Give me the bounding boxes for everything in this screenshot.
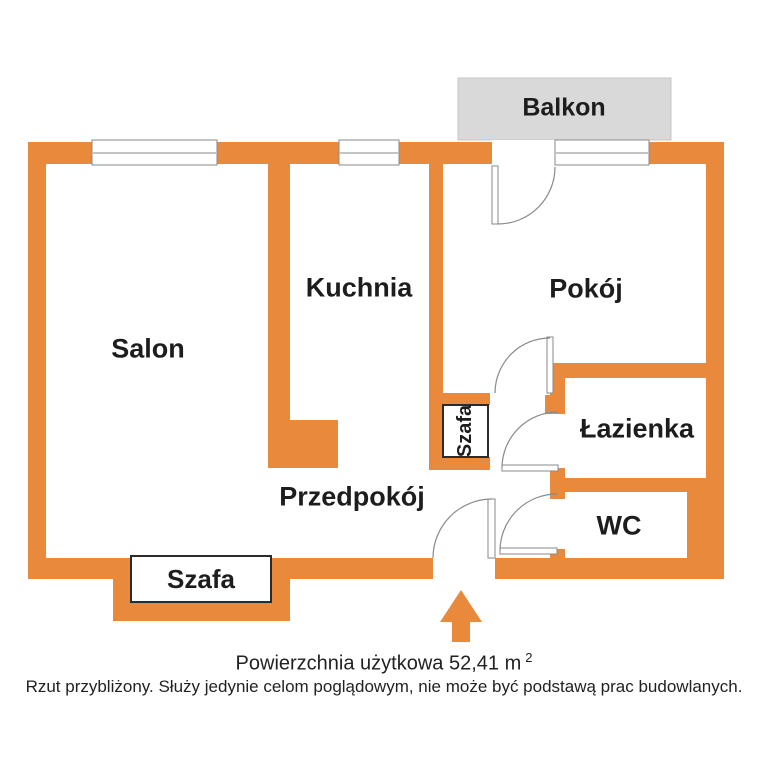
wall-salon-kuchnia-foot [268, 420, 338, 468]
door-panel-pokoj [547, 337, 553, 393]
wall-lazienka-wc-divider [565, 478, 706, 492]
door-arc-wc [500, 494, 557, 551]
wall-door-hinge-block [545, 395, 565, 414]
floor-plan: Balkon Salon Kuchnia Pokój Przedpokój Ła… [0, 0, 768, 768]
room-label-lazienka: Łazienka [580, 416, 694, 443]
room-label-przedpokoj: Przedpokój [279, 484, 425, 511]
closet-hall-bottom-bar [429, 457, 490, 470]
door-arc-pokoj [495, 338, 550, 393]
room-label-kuchnia: Kuchnia [306, 275, 413, 302]
usable-area-superscript: 2 [525, 650, 532, 665]
wall-kuchnia-hall [429, 164, 443, 470]
usable-area-text: Powierzchnia użytkowa 52,41 m2 [0, 650, 768, 676]
closet-label-salon: Szafa [167, 566, 235, 592]
room-label-salon: Salon [111, 336, 185, 363]
door-panel-lazienka [502, 465, 558, 471]
door-panel-entrance [488, 499, 495, 558]
room-label-pokoj: Pokój [549, 276, 623, 303]
room-label-wc: WC [597, 513, 642, 540]
wall-right [706, 142, 724, 579]
closet-hall-top-bar [443, 393, 490, 405]
door-panel-balcony [492, 166, 498, 224]
closet-label-hall: Szafa [455, 405, 475, 457]
wall-wc-right-filler [687, 492, 706, 558]
door-arc-lazienka [502, 412, 558, 468]
door-panel-wc [500, 548, 557, 554]
door-arc-entrance [433, 499, 492, 558]
balcony-door-opening [492, 140, 555, 166]
door-arc-balcony [498, 167, 555, 224]
wall-left [28, 142, 46, 579]
entrance-arrow-icon [440, 590, 482, 642]
entrance-opening [433, 558, 495, 579]
usable-area-value: Powierzchnia użytkowa 52,41 m [236, 653, 522, 675]
balcony-label: Balkon [522, 96, 605, 121]
wall-lazienka-top [548, 363, 706, 378]
wall-salon-kuchnia [268, 164, 290, 420]
disclaimer-text: Rzut przybliżony. Służy jedynie celom po… [0, 677, 768, 697]
